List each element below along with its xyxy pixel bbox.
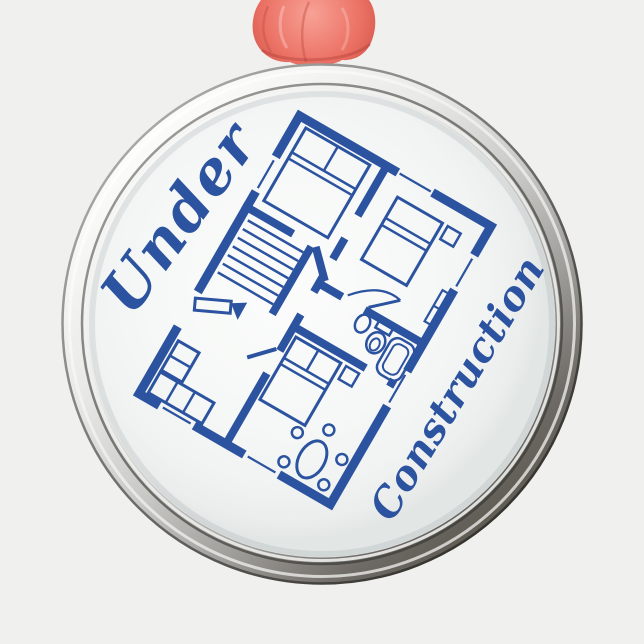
- ornament-photo-canvas: Under Construction: [0, 0, 644, 644]
- ribbon-knot: [253, 0, 376, 66]
- product-photo: Under Construction: [0, 0, 644, 644]
- ornament: Under Construction: [63, 65, 582, 584]
